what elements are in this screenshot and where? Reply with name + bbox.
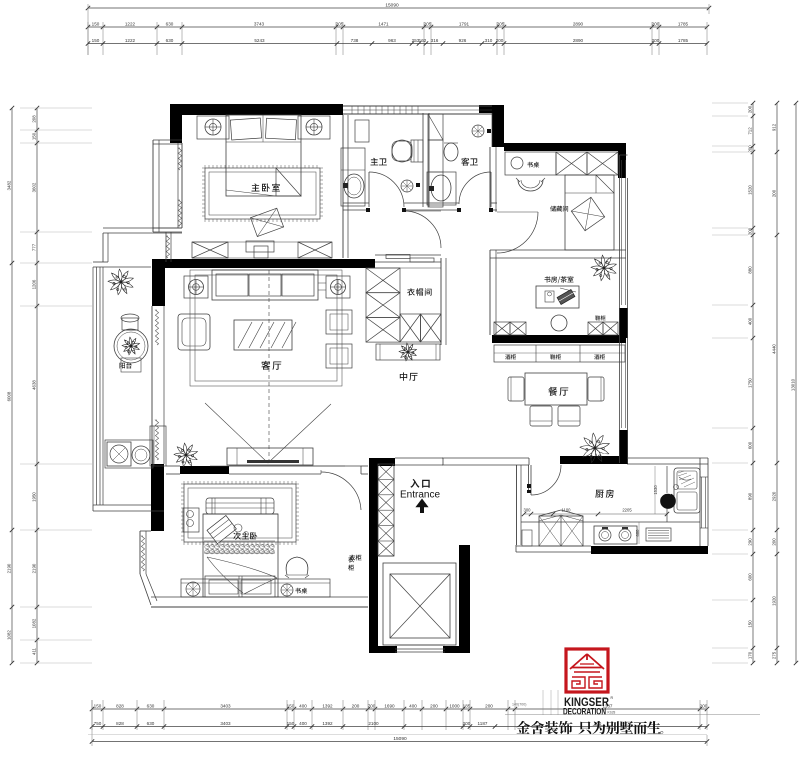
svg-text:150: 150 [287,721,295,726]
svg-text:200: 200 [463,721,471,726]
svg-text:630: 630 [166,21,174,26]
svg-text:1785: 1785 [678,38,689,43]
svg-text:3602: 3602 [32,182,37,192]
svg-text:150: 150 [287,703,295,708]
svg-text:1750: 1750 [748,378,753,388]
svg-text:1520: 1520 [748,185,753,195]
svg-text:200: 200 [748,145,753,153]
svg-text:200: 200 [652,21,660,26]
svg-text:1082: 1082 [32,618,37,628]
svg-text:140(700): 140(700) [512,703,526,707]
svg-text:150: 150 [92,38,100,43]
svg-text:600: 600 [635,529,640,537]
svg-text:400: 400 [299,721,307,726]
svg-text:3482: 3482 [7,180,12,190]
svg-text:200: 200 [652,38,660,43]
svg-text:963: 963 [388,38,396,43]
svg-text:1222: 1222 [125,21,136,26]
svg-text:2890: 2890 [573,38,584,43]
svg-text:630: 630 [166,38,174,43]
svg-text:6008: 6008 [7,391,12,401]
svg-text:200: 200 [352,703,360,708]
svg-text:3403: 3403 [220,703,231,708]
svg-text:1100: 1100 [561,508,571,513]
svg-text:15090: 15090 [385,3,399,9]
svg-text:1000: 1000 [449,703,460,708]
svg-text:777: 777 [32,243,37,251]
svg-text:828: 828 [116,721,124,726]
svg-text:200: 200 [430,703,438,708]
svg-text:1530: 1530 [653,485,658,495]
svg-text:890: 890 [748,492,753,500]
svg-text:1222: 1222 [125,38,136,43]
svg-text:150: 150 [32,132,37,140]
svg-text:1950: 1950 [32,492,37,502]
svg-text:400: 400 [748,317,753,325]
svg-text:4440: 4440 [772,344,777,354]
svg-text:200: 200 [485,703,493,708]
svg-text:275: 275 [772,651,777,659]
svg-text:200: 200 [748,227,753,235]
svg-text:3743: 3743 [254,21,265,26]
svg-text:200: 200 [772,538,777,546]
svg-text:200: 200 [496,38,504,43]
svg-text:2920: 2920 [772,491,777,501]
svg-text:170: 170 [748,651,753,659]
svg-text:700: 700 [368,703,376,708]
svg-text:1392: 1392 [322,703,333,708]
svg-text:5243: 5243 [254,38,265,43]
svg-text:13010: 13010 [791,378,796,391]
svg-text:630: 630 [147,703,155,708]
svg-text:200: 200 [700,703,708,708]
svg-text:290: 290 [748,538,753,546]
svg-text:828: 828 [116,703,124,708]
svg-text:2190: 2190 [7,563,12,573]
svg-text:1187: 1187 [478,721,488,726]
svg-text:1082: 1082 [7,630,12,640]
svg-text:150: 150 [94,703,102,708]
svg-text:926: 926 [459,38,467,43]
svg-text:205: 205 [336,21,344,26]
svg-text:2890: 2890 [573,21,584,26]
svg-text:712: 712 [748,127,753,135]
svg-text:1785: 1785 [678,21,689,26]
svg-text:DECORATION: DECORATION [563,707,606,717]
svg-text:316: 316 [431,38,439,43]
svg-text:150: 150 [92,21,100,26]
svg-text:1690: 1690 [384,703,395,708]
svg-text:4638: 4638 [32,380,37,390]
svg-text:600: 600 [748,441,753,449]
svg-text:2190: 2190 [32,563,37,573]
svg-text:2100: 2100 [368,721,379,726]
svg-text:1920: 1920 [772,596,777,606]
svg-text:185: 185 [463,703,471,708]
svg-text:600: 600 [748,573,753,581]
svg-text:1206: 1206 [32,279,37,289]
svg-text:310: 310 [485,38,493,43]
svg-text:208: 208 [32,115,37,123]
svg-text:750: 750 [94,721,102,726]
svg-text:400: 400 [409,703,417,708]
svg-text:630: 630 [147,721,155,726]
svg-text:150: 150 [748,620,753,628]
svg-text:2205: 2205 [622,508,632,513]
svg-text:200: 200 [748,105,753,113]
svg-text:Entrance: Entrance [400,490,440,501]
svg-text:1791: 1791 [459,21,470,26]
svg-text:3403: 3403 [220,721,231,726]
svg-text:880: 880 [748,266,753,274]
svg-text:15090: 15090 [393,736,407,742]
svg-text:205: 205 [424,21,432,26]
svg-text:300: 300 [524,508,532,513]
svg-text:KS28: KS28 [608,711,616,715]
svg-text:411: 411 [32,647,37,655]
svg-text:200: 200 [772,189,777,197]
svg-text:912: 912 [772,123,777,131]
svg-text:1471: 1471 [378,21,389,26]
svg-text:162: 162 [419,38,427,43]
svg-text:738: 738 [351,38,359,43]
svg-text:400: 400 [299,703,307,708]
svg-text:1392: 1392 [322,721,333,726]
svg-text:205: 205 [497,21,505,26]
